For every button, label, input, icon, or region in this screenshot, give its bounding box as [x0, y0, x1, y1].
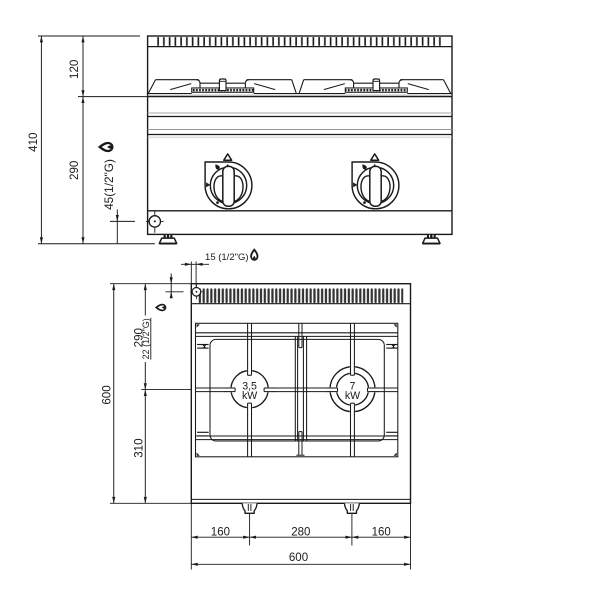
svg-text:310: 310 [133, 438, 146, 457]
svg-text:290: 290 [133, 328, 146, 347]
svg-text:290: 290 [68, 161, 81, 180]
svg-text:15 (1/2"G): 15 (1/2"G) [205, 252, 249, 263]
svg-text:160: 160 [211, 527, 230, 539]
svg-text:410: 410 [27, 133, 40, 152]
svg-text:kW: kW [242, 390, 257, 402]
svg-text:120: 120 [68, 60, 81, 79]
svg-text:kW: kW [345, 390, 360, 402]
svg-text:160: 160 [372, 527, 391, 539]
svg-text:45(1/2"G): 45(1/2"G) [102, 159, 116, 210]
svg-text:280: 280 [291, 527, 310, 539]
svg-text:600: 600 [101, 385, 114, 404]
svg-text:600: 600 [289, 552, 308, 564]
